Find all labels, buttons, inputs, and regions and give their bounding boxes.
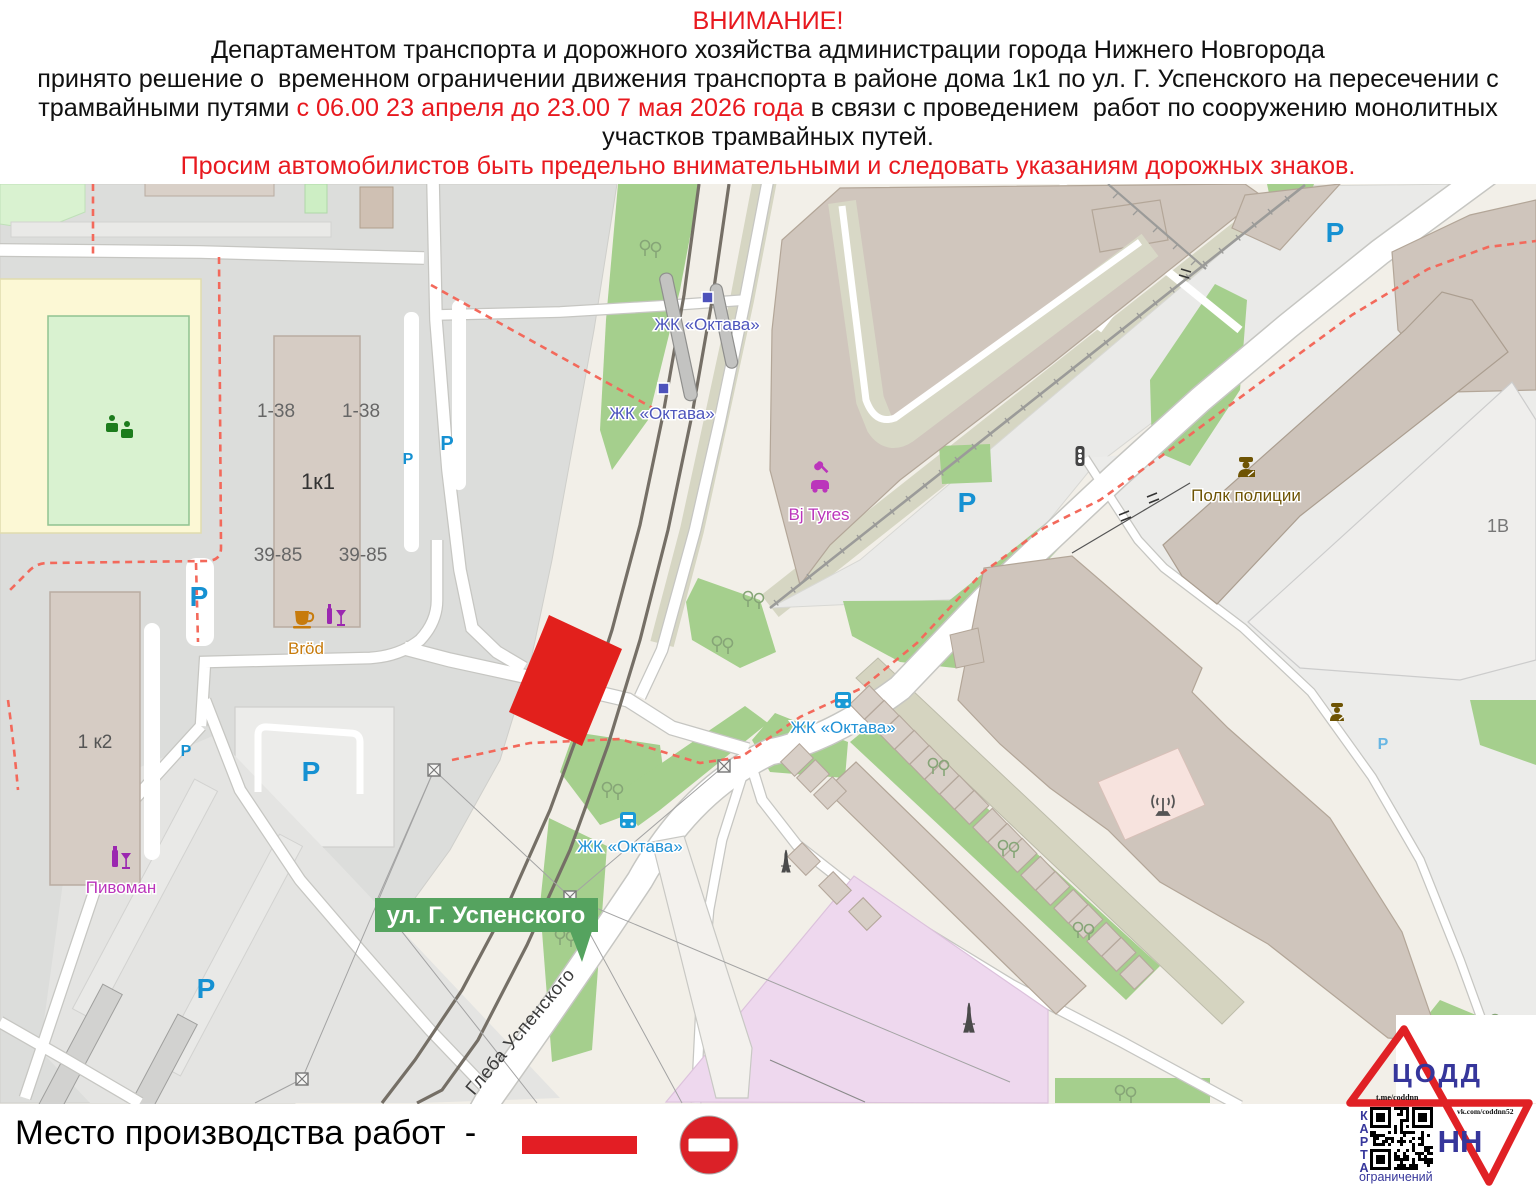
svg-text:P: P — [440, 433, 453, 455]
svg-text:Bröd: Bröd — [288, 639, 324, 658]
svg-text:ЖК «Октава»: ЖК «Октава» — [609, 404, 714, 423]
svg-text:ул. Г. Успенского: ул. Г. Успенского — [387, 902, 586, 929]
svg-text:1-38: 1-38 — [257, 401, 295, 422]
svg-text:К: К — [1360, 1109, 1368, 1123]
svg-text:ЖК «Октава»: ЖК «Октава» — [790, 718, 895, 737]
svg-text:P: P — [190, 581, 209, 612]
svg-text:1к1: 1к1 — [301, 469, 335, 494]
svg-text:P: P — [197, 973, 216, 1004]
svg-text:А: А — [1359, 1122, 1368, 1136]
svg-text:vk.com/coddnn52: vk.com/coddnn52 — [1457, 1107, 1514, 1116]
svg-text:ограничений: ограничений — [1359, 1170, 1433, 1184]
svg-text:ЖК «Октава»: ЖК «Октава» — [577, 837, 682, 856]
svg-text:ЖК «Октава»: ЖК «Октава» — [654, 315, 759, 334]
svg-text:Bj Tyres: Bj Tyres — [788, 505, 849, 524]
svg-text:39-85: 39-85 — [339, 545, 388, 566]
svg-text:НН: НН — [1438, 1124, 1483, 1159]
svg-text:39-85: 39-85 — [254, 545, 303, 566]
svg-text:t.me/coddnn: t.me/coddnn — [1376, 1093, 1419, 1102]
svg-text:1-38: 1-38 — [342, 401, 380, 422]
svg-text:Пивоман: Пивоман — [86, 878, 157, 897]
svg-text:Р: Р — [1360, 1135, 1368, 1149]
svg-text:Т: Т — [1360, 1148, 1368, 1162]
svg-text:P: P — [1326, 217, 1345, 248]
svg-text:P: P — [403, 451, 414, 468]
svg-text:P: P — [302, 756, 321, 787]
svg-text:1В: 1В — [1487, 516, 1509, 536]
svg-text:P: P — [958, 487, 977, 518]
svg-text:P: P — [1378, 736, 1389, 753]
svg-text:Полк полиции: Полк полиции — [1191, 486, 1301, 505]
svg-text:P: P — [181, 743, 192, 760]
svg-text:1 к2: 1 к2 — [78, 732, 113, 753]
